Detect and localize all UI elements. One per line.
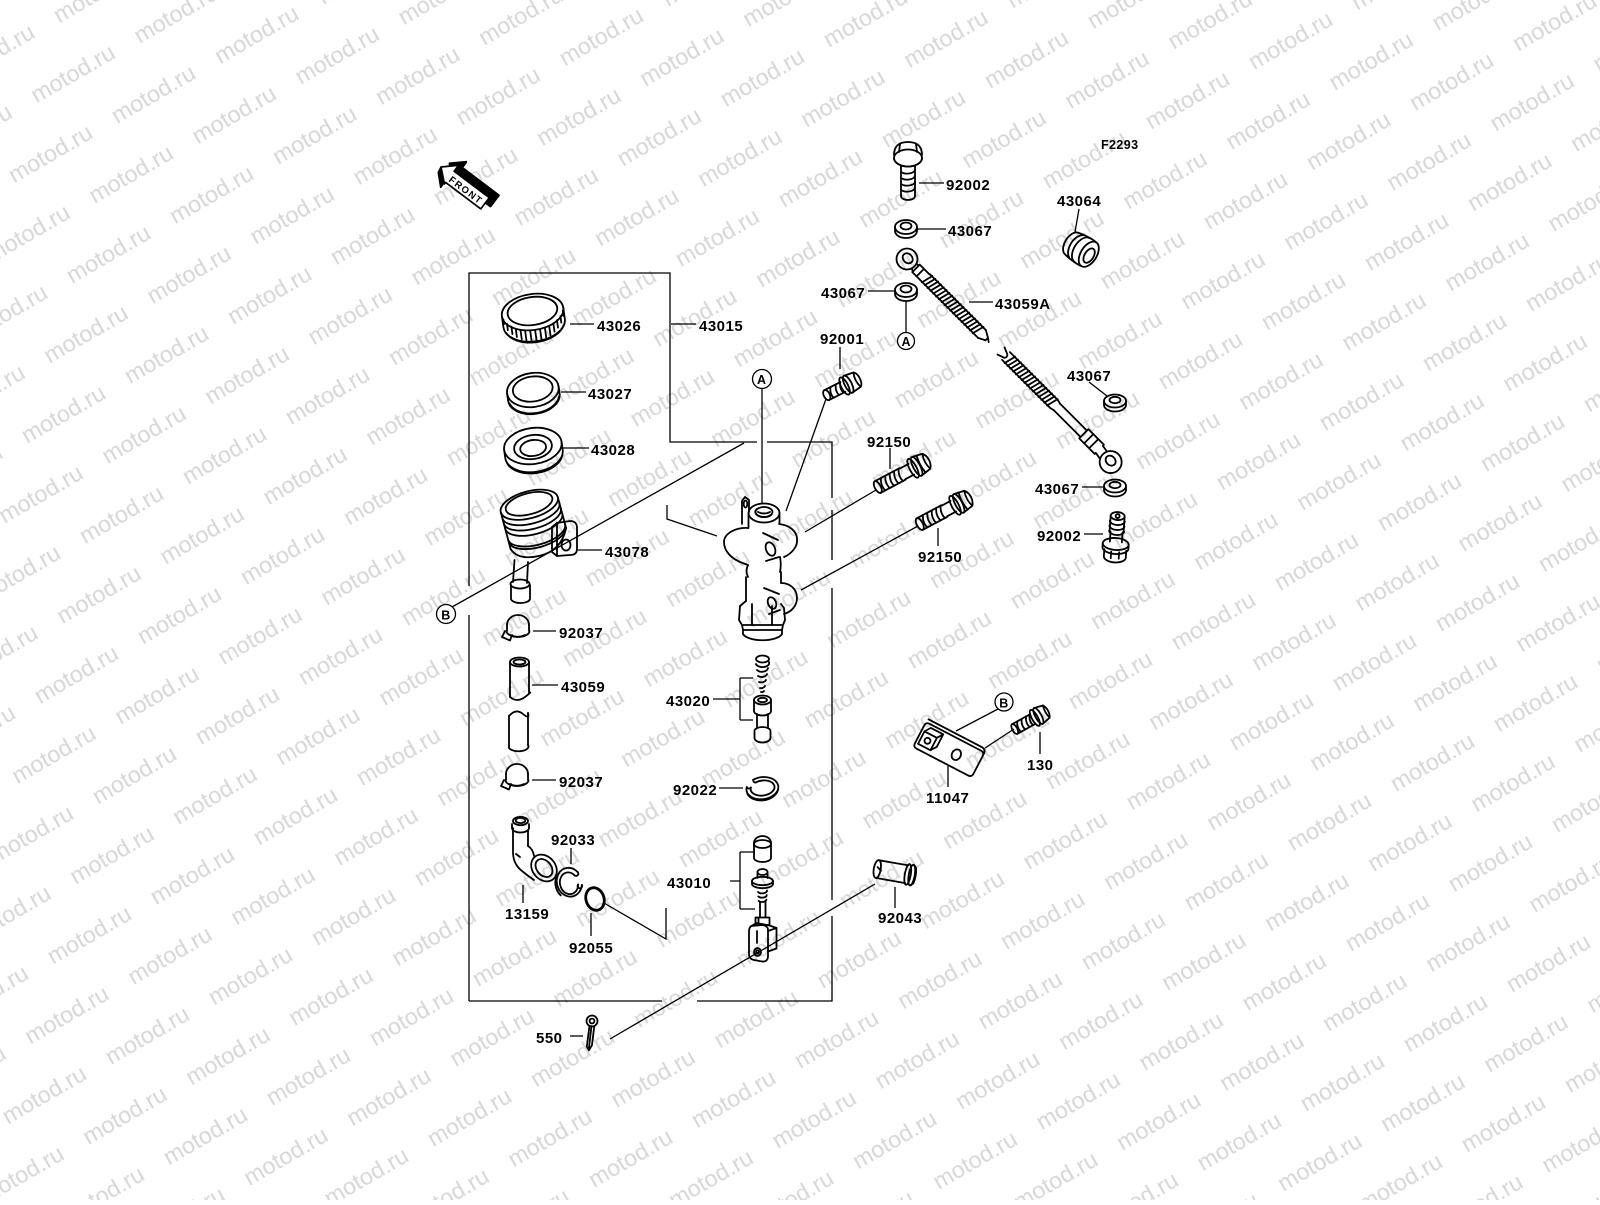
svg-text:43020: 43020: [666, 693, 710, 710]
svg-text:92043: 92043: [878, 910, 922, 927]
svg-text:43010: 43010: [667, 875, 711, 892]
svg-text:13159: 13159: [505, 906, 549, 923]
svg-text:11047: 11047: [926, 790, 969, 807]
svg-text:43027: 43027: [588, 386, 632, 403]
svg-text:92002: 92002: [946, 177, 990, 194]
svg-text:92037: 92037: [559, 625, 603, 642]
svg-text:43015: 43015: [699, 318, 743, 335]
svg-text:B: B: [441, 609, 450, 623]
svg-text:F2293: F2293: [1101, 138, 1138, 152]
svg-text:43026: 43026: [597, 318, 641, 335]
svg-text:43067: 43067: [1035, 481, 1079, 498]
svg-text:43078: 43078: [605, 544, 649, 561]
svg-text:92150: 92150: [918, 549, 962, 566]
svg-text:92150: 92150: [867, 434, 911, 451]
svg-text:43067: 43067: [948, 223, 992, 240]
svg-text:43059: 43059: [561, 679, 605, 696]
svg-text:A: A: [902, 335, 911, 349]
svg-text:92037: 92037: [559, 774, 603, 791]
svg-text:B: B: [999, 697, 1008, 711]
svg-text:92001: 92001: [820, 331, 864, 348]
svg-text:43064: 43064: [1057, 193, 1101, 210]
svg-text:92002: 92002: [1037, 528, 1081, 545]
svg-text:550: 550: [536, 1030, 563, 1047]
svg-text:A: A: [757, 373, 766, 387]
svg-text:43067: 43067: [821, 285, 865, 302]
svg-text:43028: 43028: [591, 442, 635, 459]
svg-text:130: 130: [1027, 757, 1054, 774]
svg-text:92055: 92055: [569, 940, 613, 957]
svg-text:43059A: 43059A: [995, 296, 1051, 313]
svg-text:43067: 43067: [1067, 368, 1111, 385]
svg-text:92033: 92033: [551, 832, 595, 849]
svg-text:92022: 92022: [673, 782, 717, 799]
